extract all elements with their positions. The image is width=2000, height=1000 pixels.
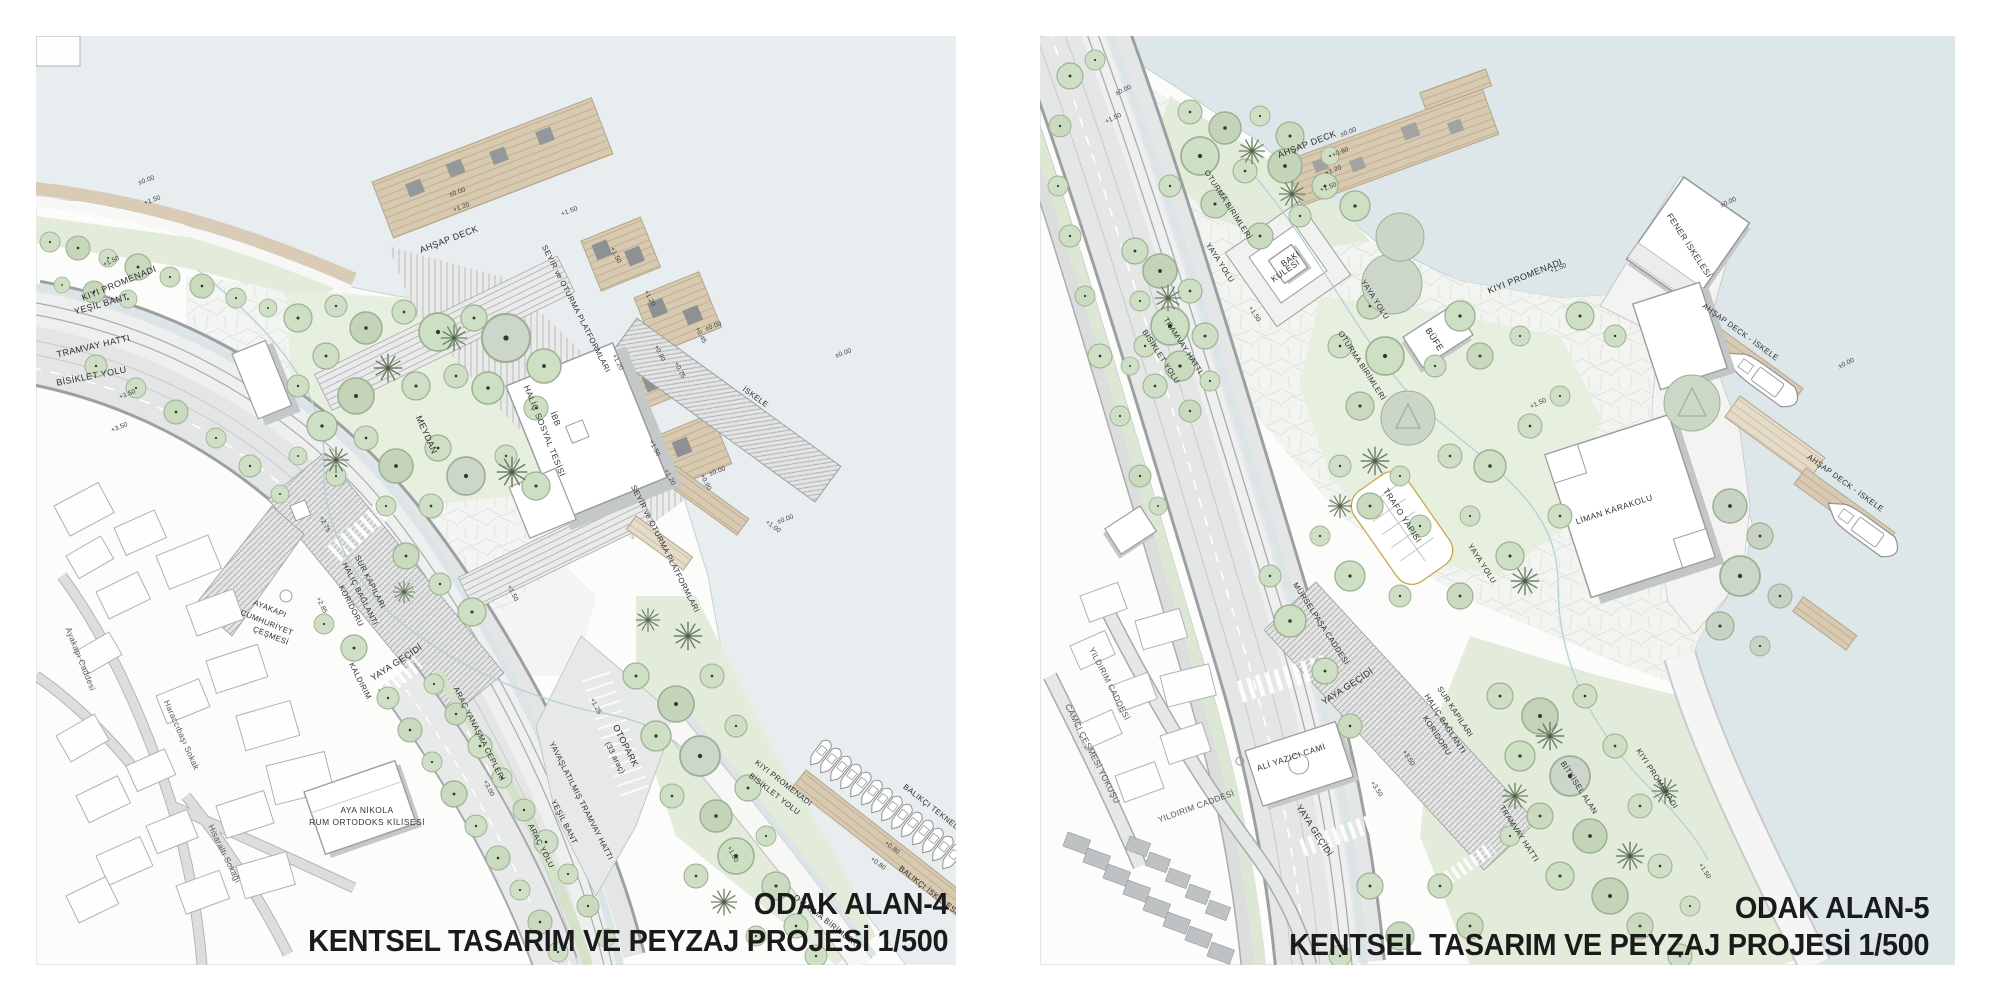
title-block: ODAK ALAN-5 KENTSEL TASARIM VE PEYZAJ PR… xyxy=(1289,889,1929,963)
plan-title: ODAK ALAN-5 xyxy=(1289,889,1929,926)
plan-odak-alan-4: ±0.00+1.50+1.50KIYI PROMENADIYEŞİL BANTT… xyxy=(36,36,956,965)
map-label: RUM ORTODOKS KİLİSESİ xyxy=(309,817,425,827)
plan-subtitle: KENTSEL TASARIM VE PEYZAJ PROJESİ 1/500 xyxy=(308,922,948,959)
plan-odak-alan-5: ±0.00+1.50AHŞAP DECK±0.00+0.90+1.20+1.50… xyxy=(1040,36,1955,965)
plan-odak-alan-5-svg: ±0.00+1.50AHŞAP DECK±0.00+0.90+1.20+1.50… xyxy=(1040,36,1955,965)
map-label: AYA NİKOLA xyxy=(340,805,393,815)
page: ±0.00+1.50+1.50KIYI PROMENADIYEŞİL BANTT… xyxy=(0,0,2000,1000)
plan-title: ODAK ALAN-4 xyxy=(308,885,948,922)
cesme-fountain xyxy=(280,590,292,602)
plan-subtitle: KENTSEL TASARIM VE PEYZAJ PROJESİ 1/500 xyxy=(1289,926,1929,963)
title-block: ODAK ALAN-4 KENTSEL TASARIM VE PEYZAJ PR… xyxy=(308,885,948,959)
plan-odak-alan-4-svg: ±0.00+1.50+1.50KIYI PROMENADIYEŞİL BANTT… xyxy=(36,36,956,965)
